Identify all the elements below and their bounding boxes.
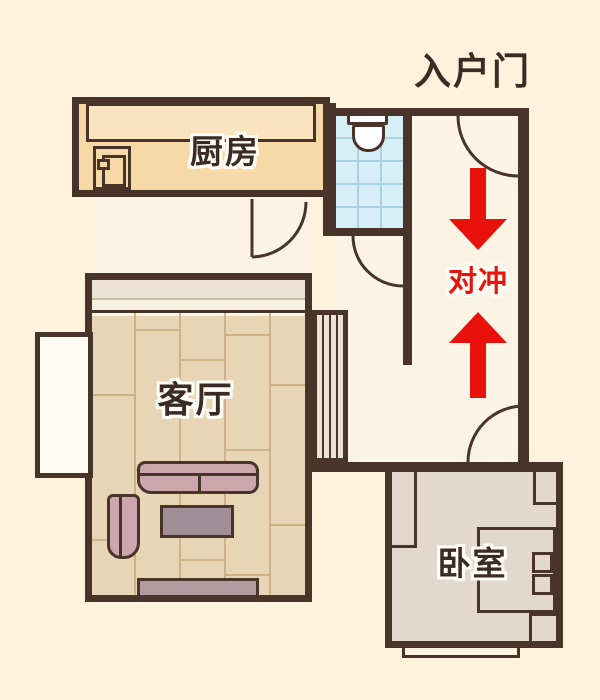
corridor-left-wall bbox=[403, 108, 412, 365]
bedroom-wardrobe-line-h bbox=[392, 545, 417, 548]
kitchen-door-arc bbox=[252, 202, 306, 257]
bedroom-nightstand-line-v bbox=[529, 613, 532, 641]
floor-plan: 入户门 厨房 客厅 对冲 卧室 bbox=[0, 0, 600, 700]
bathroom-left-wall bbox=[323, 103, 336, 236]
entrance-door-label: 入户门 bbox=[400, 52, 545, 93]
arrow-down-icon bbox=[449, 168, 507, 250]
entrance-door-arc bbox=[458, 116, 518, 176]
bedroom-wardrobe-line-v bbox=[414, 472, 417, 548]
armchair bbox=[107, 494, 140, 559]
bedroom-nightstand-line-h bbox=[529, 613, 556, 616]
sofa-cushion-seam bbox=[198, 473, 201, 491]
armchair-seam bbox=[119, 497, 122, 556]
bay-window bbox=[35, 332, 93, 478]
kitchen-label: 厨房 bbox=[175, 134, 275, 170]
bedroom-label: 卧室 bbox=[425, 546, 520, 582]
living-room-label: 客厅 bbox=[143, 381, 248, 421]
sofa bbox=[137, 461, 259, 494]
arrow-up-icon bbox=[449, 312, 507, 398]
bathroom-door-arc bbox=[353, 236, 403, 286]
corridor-right-wall bbox=[518, 108, 529, 472]
bedroom-cabinet-tr-line-h bbox=[533, 502, 559, 505]
clash-label: 对冲 bbox=[440, 266, 516, 298]
corridor-bottom-wall bbox=[310, 462, 563, 472]
bed-pillow-2 bbox=[532, 574, 553, 595]
bedroom-threshold bbox=[402, 648, 520, 658]
bed-pillow-1 bbox=[532, 552, 553, 573]
bedroom-door-arc bbox=[468, 406, 524, 462]
bedroom-cabinet-tr-line-v bbox=[533, 472, 536, 505]
storage-cabinet-stripes bbox=[312, 310, 348, 463]
fridge-handle bbox=[97, 159, 110, 170]
coffee-table bbox=[160, 505, 234, 538]
bathroom-bottom-wall bbox=[328, 228, 411, 236]
tv-console bbox=[137, 578, 259, 598]
